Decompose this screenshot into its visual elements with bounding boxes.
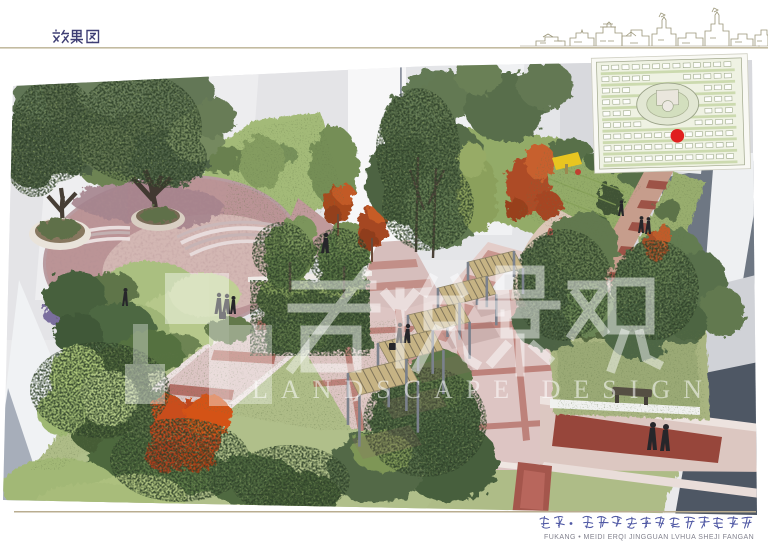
- svg-text:LANDSCAPE DESIGN: LANDSCAPE DESIGN: [252, 375, 715, 404]
- svg-text:FUKANG • MEIDI ERQI JINGGUAN L: FUKANG • MEIDI ERQI JINGGUAN LVHUA SHEJI…: [544, 534, 754, 541]
